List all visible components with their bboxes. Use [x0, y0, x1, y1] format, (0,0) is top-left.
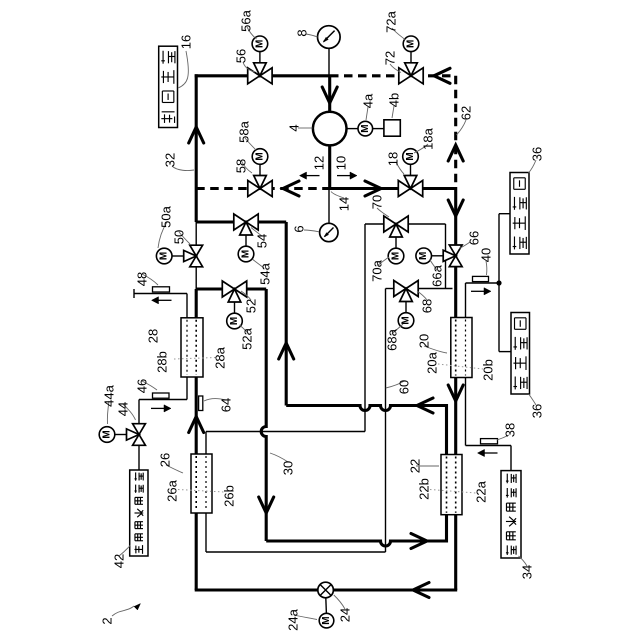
svg-text:22a: 22a	[474, 480, 489, 502]
svg-text:24a: 24a	[286, 608, 301, 630]
svg-text:52a: 52a	[240, 327, 255, 349]
svg-text:14: 14	[337, 197, 352, 211]
svg-text:44a: 44a	[102, 384, 117, 406]
svg-text:36: 36	[530, 404, 545, 418]
svg-text:8: 8	[295, 29, 310, 36]
svg-text:34: 34	[520, 565, 535, 579]
svg-text:68: 68	[420, 299, 435, 313]
svg-text:54a: 54a	[258, 262, 273, 284]
svg-text:72: 72	[383, 51, 398, 65]
svg-text:40: 40	[479, 248, 494, 262]
svg-text:42: 42	[112, 554, 127, 568]
svg-text:M: M	[360, 124, 371, 132]
svg-text:44: 44	[116, 402, 131, 416]
svg-text:10: 10	[334, 156, 349, 170]
svg-text:M: M	[102, 430, 113, 438]
svg-text:4: 4	[287, 124, 302, 131]
svg-text:22b: 22b	[417, 478, 432, 500]
svg-text:66a: 66a	[430, 264, 445, 286]
svg-text:20: 20	[417, 334, 432, 348]
svg-text:66: 66	[467, 231, 482, 245]
svg-text:52: 52	[244, 299, 259, 313]
svg-text:M: M	[401, 316, 412, 324]
svg-text:20a: 20a	[425, 351, 440, 373]
svg-text:M: M	[418, 252, 429, 260]
svg-text:6: 6	[292, 225, 307, 232]
svg-text:M: M	[391, 252, 402, 260]
svg-text:72a: 72a	[384, 10, 399, 32]
svg-text:48: 48	[135, 272, 150, 286]
svg-text:20b: 20b	[481, 359, 496, 381]
svg-text:64: 64	[219, 398, 234, 412]
svg-text:M: M	[254, 40, 265, 48]
svg-text:M: M	[405, 152, 416, 160]
svg-text:18: 18	[386, 152, 401, 166]
svg-text:70: 70	[370, 195, 385, 209]
svg-text:50a: 50a	[159, 205, 174, 227]
svg-text:58: 58	[234, 159, 249, 173]
svg-text:32: 32	[163, 153, 178, 167]
svg-text:58a: 58a	[237, 120, 252, 142]
svg-text:M: M	[229, 317, 240, 325]
svg-text:22: 22	[408, 459, 423, 473]
svg-text:18a: 18a	[421, 127, 436, 149]
svg-text:16: 16	[179, 35, 194, 49]
svg-text:62: 62	[459, 106, 474, 120]
svg-text:70a: 70a	[370, 259, 385, 281]
svg-text:4b: 4b	[387, 93, 402, 107]
svg-text:26a: 26a	[165, 479, 180, 501]
svg-text:2: 2	[100, 617, 115, 624]
svg-text:30: 30	[281, 461, 296, 475]
svg-text:M: M	[159, 252, 170, 260]
svg-text:28: 28	[146, 329, 161, 343]
svg-text:M: M	[321, 616, 332, 624]
svg-text:46: 46	[135, 379, 150, 393]
svg-text:M: M	[241, 250, 252, 258]
svg-text:M: M	[255, 152, 266, 160]
svg-text:56a: 56a	[239, 9, 254, 31]
svg-text:60: 60	[397, 380, 412, 394]
svg-text:68a: 68a	[385, 328, 400, 350]
svg-text:28b: 28b	[155, 351, 170, 373]
svg-text:26: 26	[158, 453, 173, 467]
svg-text:M: M	[406, 40, 417, 48]
svg-text:56: 56	[234, 49, 249, 63]
svg-text:36: 36	[530, 147, 545, 161]
svg-text:54: 54	[255, 234, 270, 248]
svg-text:26b: 26b	[222, 485, 237, 507]
svg-text:12: 12	[312, 156, 327, 170]
svg-text:4a: 4a	[361, 93, 376, 108]
svg-text:24: 24	[338, 608, 353, 622]
svg-text:28a: 28a	[213, 346, 228, 368]
svg-text:38: 38	[503, 423, 518, 437]
svg-text:50: 50	[172, 230, 187, 244]
